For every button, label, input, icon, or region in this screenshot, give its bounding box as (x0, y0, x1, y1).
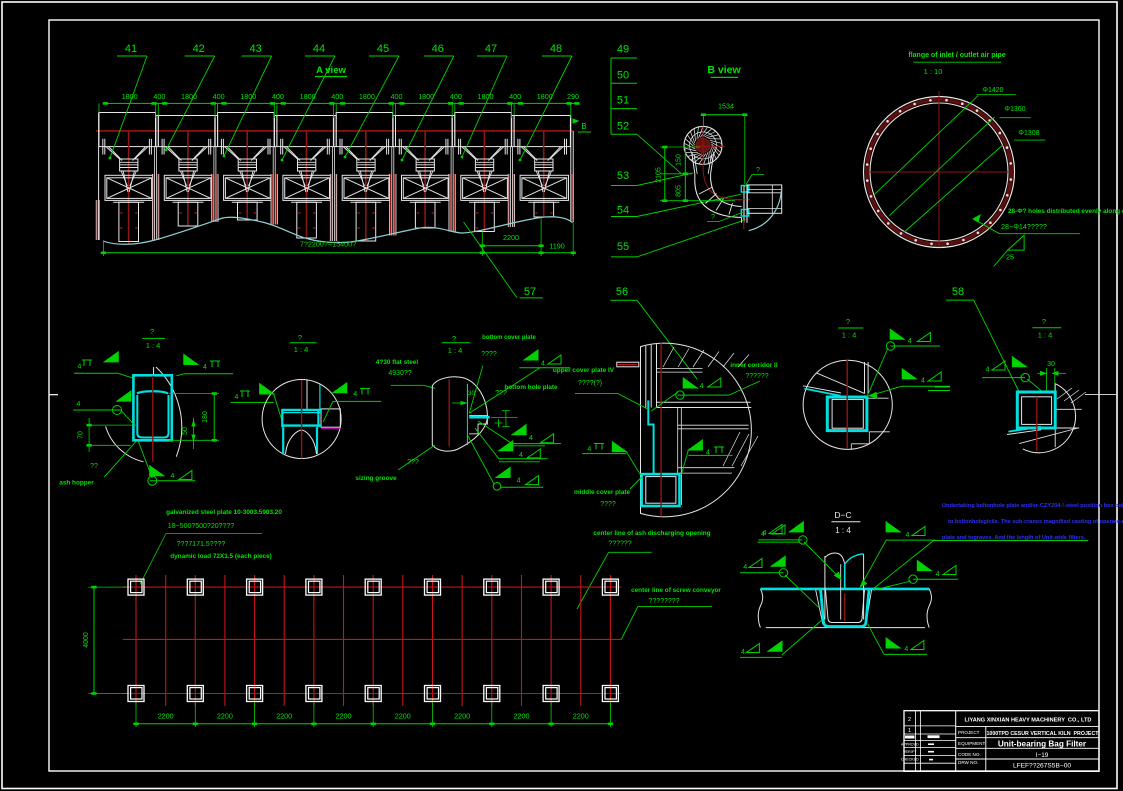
svg-text:18−500?500?20????: 18−500?500?20???? (168, 523, 234, 530)
svg-text:?: ? (1042, 317, 1046, 326)
svg-text:PROJECT: PROJECT (958, 730, 980, 735)
svg-text:LFEF??267S5B−00: LFEF??267S5B−00 (1013, 762, 1071, 769)
svg-text:42: 42 (193, 43, 205, 55)
svg-text:VERIFY: VERIFY (903, 750, 917, 754)
svg-text:??????: ?????? (745, 373, 768, 380)
svg-text:2200: 2200 (217, 712, 233, 721)
svg-text:50: 50 (182, 427, 189, 435)
svg-text:?: ? (756, 167, 760, 174)
svg-text:1190: 1190 (549, 242, 564, 251)
svg-text:Φ1360: Φ1360 (1004, 106, 1025, 113)
svg-text:4: 4 (921, 378, 925, 385)
svg-text:4: 4 (235, 394, 239, 401)
svg-text:I−19: I−19 (1036, 752, 1049, 759)
svg-text:4: 4 (706, 450, 710, 457)
svg-text:1800: 1800 (181, 92, 197, 101)
svg-text:400: 400 (272, 92, 284, 101)
svg-text:47: 47 (485, 43, 497, 55)
svg-text:2200: 2200 (503, 233, 519, 242)
svg-text:805: 805 (676, 185, 683, 197)
svg-text:4000: 4000 (83, 632, 90, 648)
svg-text:inner corridor II: inner corridor II (730, 362, 777, 369)
svg-text:2200: 2200 (276, 712, 292, 721)
svg-text:4: 4 (743, 564, 747, 571)
svg-text:400: 400 (153, 92, 165, 101)
svg-text:400: 400 (213, 92, 225, 101)
svg-text:middle cover plate: middle cover plate (574, 489, 631, 496)
svg-text:2200: 2200 (336, 712, 352, 721)
svg-text:4: 4 (763, 530, 767, 537)
svg-text:CODE NO.: CODE NO. (958, 752, 981, 757)
svg-text:4: 4 (986, 367, 990, 374)
svg-text:center line of ash discharging: center line of ash discharging opening (593, 530, 710, 537)
svg-text:4: 4 (77, 401, 81, 408)
svg-text:4: 4 (541, 361, 545, 368)
svg-text:????: ???? (481, 351, 497, 358)
svg-text:flange of inlet / outlet air p: flange of inlet / outlet air pipe (908, 52, 1005, 59)
svg-text:28−Φ14?????: 28−Φ14????? (1001, 222, 1047, 231)
svg-text:52: 52 (617, 121, 629, 133)
svg-text:41: 41 (125, 43, 137, 55)
svg-text:2: 2 (908, 717, 911, 723)
svg-text:Unit-bearing Bag Filter: Unit-bearing Bag Filter (998, 740, 1087, 749)
svg-text:4: 4 (700, 383, 704, 390)
svg-text:4: 4 (519, 452, 523, 459)
svg-text:????(?): ????(?) (578, 380, 602, 387)
svg-text:2200: 2200 (395, 712, 411, 721)
svg-text:2105: 2105 (656, 167, 663, 183)
svg-text:290: 290 (567, 92, 579, 101)
svg-text:180: 180 (202, 411, 209, 423)
svg-text:400: 400 (450, 92, 462, 101)
svg-text:4: 4 (908, 338, 912, 345)
svg-text:30: 30 (1047, 361, 1055, 368)
svg-text:?: ? (150, 327, 154, 336)
svg-text:4: 4 (171, 473, 175, 480)
svg-text:1800: 1800 (122, 92, 138, 101)
svg-text:25: 25 (1006, 253, 1014, 262)
svg-text:2200: 2200 (514, 712, 530, 721)
svg-text:4: 4 (906, 532, 910, 539)
svg-text:sizing groove: sizing groove (355, 475, 397, 482)
svg-text:1534: 1534 (718, 102, 734, 111)
svg-text:dynamic load 72X1.5 (each piec: dynamic load 72X1.5 (each piece) (170, 553, 272, 560)
svg-text:1800: 1800 (359, 92, 375, 101)
svg-text:4: 4 (517, 478, 521, 485)
svg-text:150: 150 (676, 154, 683, 166)
svg-text:58: 58 (952, 286, 964, 298)
svg-text:???7171.5????: ???7171.5???? (177, 541, 226, 548)
svg-text:D−C: D−C (834, 510, 851, 520)
svg-text:43: 43 (249, 43, 261, 55)
svg-text:CHECKED: CHECKED (901, 758, 919, 762)
svg-text:upper cover plate IV: upper cover plate IV (553, 367, 615, 374)
svg-text:2200: 2200 (158, 712, 174, 721)
svg-text:51: 51 (617, 95, 629, 107)
svg-text:2200: 2200 (454, 712, 470, 721)
svg-text:49: 49 (617, 44, 629, 56)
svg-text:4930??: 4930?? (388, 370, 411, 377)
svg-text:7?2200?=15400?: 7?2200?=15400? (300, 240, 356, 249)
svg-text:bottom cover plate: bottom cover plate (482, 335, 536, 341)
svg-text:400: 400 (509, 92, 521, 101)
svg-text:1800: 1800 (478, 92, 494, 101)
svg-text:28-Φ? holes distributed evenly: 28-Φ? holes distributed evenly along cir… (1008, 208, 1123, 215)
svg-text:44: 44 (313, 43, 325, 55)
svg-text:ash hopper: ash hopper (59, 480, 94, 487)
svg-text:?: ? (298, 333, 302, 342)
svg-text:1 : 4: 1 : 4 (1038, 331, 1053, 340)
svg-text:Φ1420: Φ1420 (982, 87, 1003, 94)
svg-text:1 : 4: 1 : 4 (146, 341, 161, 350)
svg-text:????????: ???????? (648, 598, 679, 605)
svg-text:B view: B view (707, 64, 741, 76)
svg-text:45: 45 (377, 43, 389, 55)
svg-text:4: 4 (353, 391, 357, 398)
svg-text:400: 400 (391, 92, 403, 101)
svg-text:EQUIPMENT: EQUIPMENT (958, 741, 986, 746)
svg-text:?: ? (452, 334, 456, 343)
svg-text:4: 4 (904, 646, 908, 653)
svg-text:1 : 4: 1 : 4 (842, 331, 857, 340)
svg-text:2200: 2200 (573, 712, 589, 721)
svg-text:400: 400 (331, 92, 343, 101)
svg-text:4: 4 (741, 649, 745, 656)
svg-text:4: 4 (78, 364, 82, 371)
svg-text:55: 55 (617, 241, 629, 253)
svg-text:B: B (581, 122, 586, 131)
svg-text:A view: A view (316, 65, 346, 76)
svg-text:57: 57 (524, 286, 536, 298)
svg-text:4: 4 (936, 571, 940, 578)
svg-text:??: ?? (90, 463, 98, 470)
svg-text:?: ? (846, 317, 850, 326)
svg-text:1 : 4: 1 : 4 (835, 526, 851, 535)
svg-text:Undertaking boltonhole plate a: Undertaking boltonhole plate and/or-CZY2… (942, 503, 1123, 509)
svg-text:1: 1 (908, 728, 911, 734)
svg-text:1 : 10: 1 : 10 (924, 67, 943, 76)
svg-text:1 : 4: 1 : 4 (448, 346, 463, 355)
svg-text:LIYANG XINXIAN HEAVY MACHINERY: LIYANG XINXIAN HEAVY MACHINERY CO., LTD (965, 718, 1092, 724)
svg-text:1000TPD CESUR VERTICAL KILN P: 1000TPD CESUR VERTICAL KILN PROJECT (986, 731, 1099, 737)
svg-text:54: 54 (617, 205, 629, 217)
svg-text:53: 53 (617, 170, 629, 182)
svg-text:DRW NO.: DRW NO. (958, 760, 978, 765)
svg-text:center line of screw conveyor: center line of screw conveyor (631, 587, 721, 594)
svg-text:4?30 flat steel: 4?30 flat steel (376, 359, 418, 366)
svg-text:4: 4 (587, 446, 591, 453)
svg-text:46: 46 (432, 43, 444, 55)
svg-text:galvanized steel plate 10-3003: galvanized steel plate 10-3003.5903.20 (166, 509, 282, 516)
svg-text:?: ? (711, 214, 715, 221)
svg-text:??????: ?????? (608, 541, 631, 548)
svg-text:APPROVD: APPROVD (901, 742, 919, 746)
svg-text:1 : 4: 1 : 4 (294, 345, 309, 354)
svg-text:56: 56 (616, 286, 628, 298)
svg-text:????: ???? (600, 501, 616, 508)
svg-text:70: 70 (78, 431, 85, 439)
svg-text:to boltonholegicile. The sub-c: to boltonholegicile. The sub-cranes magn… (948, 519, 1123, 525)
svg-text:Φ1308: Φ1308 (1018, 130, 1039, 137)
svg-text:50: 50 (617, 70, 629, 82)
svg-text:4: 4 (203, 364, 207, 371)
svg-text:4: 4 (529, 435, 533, 442)
svg-text:48: 48 (550, 43, 562, 55)
